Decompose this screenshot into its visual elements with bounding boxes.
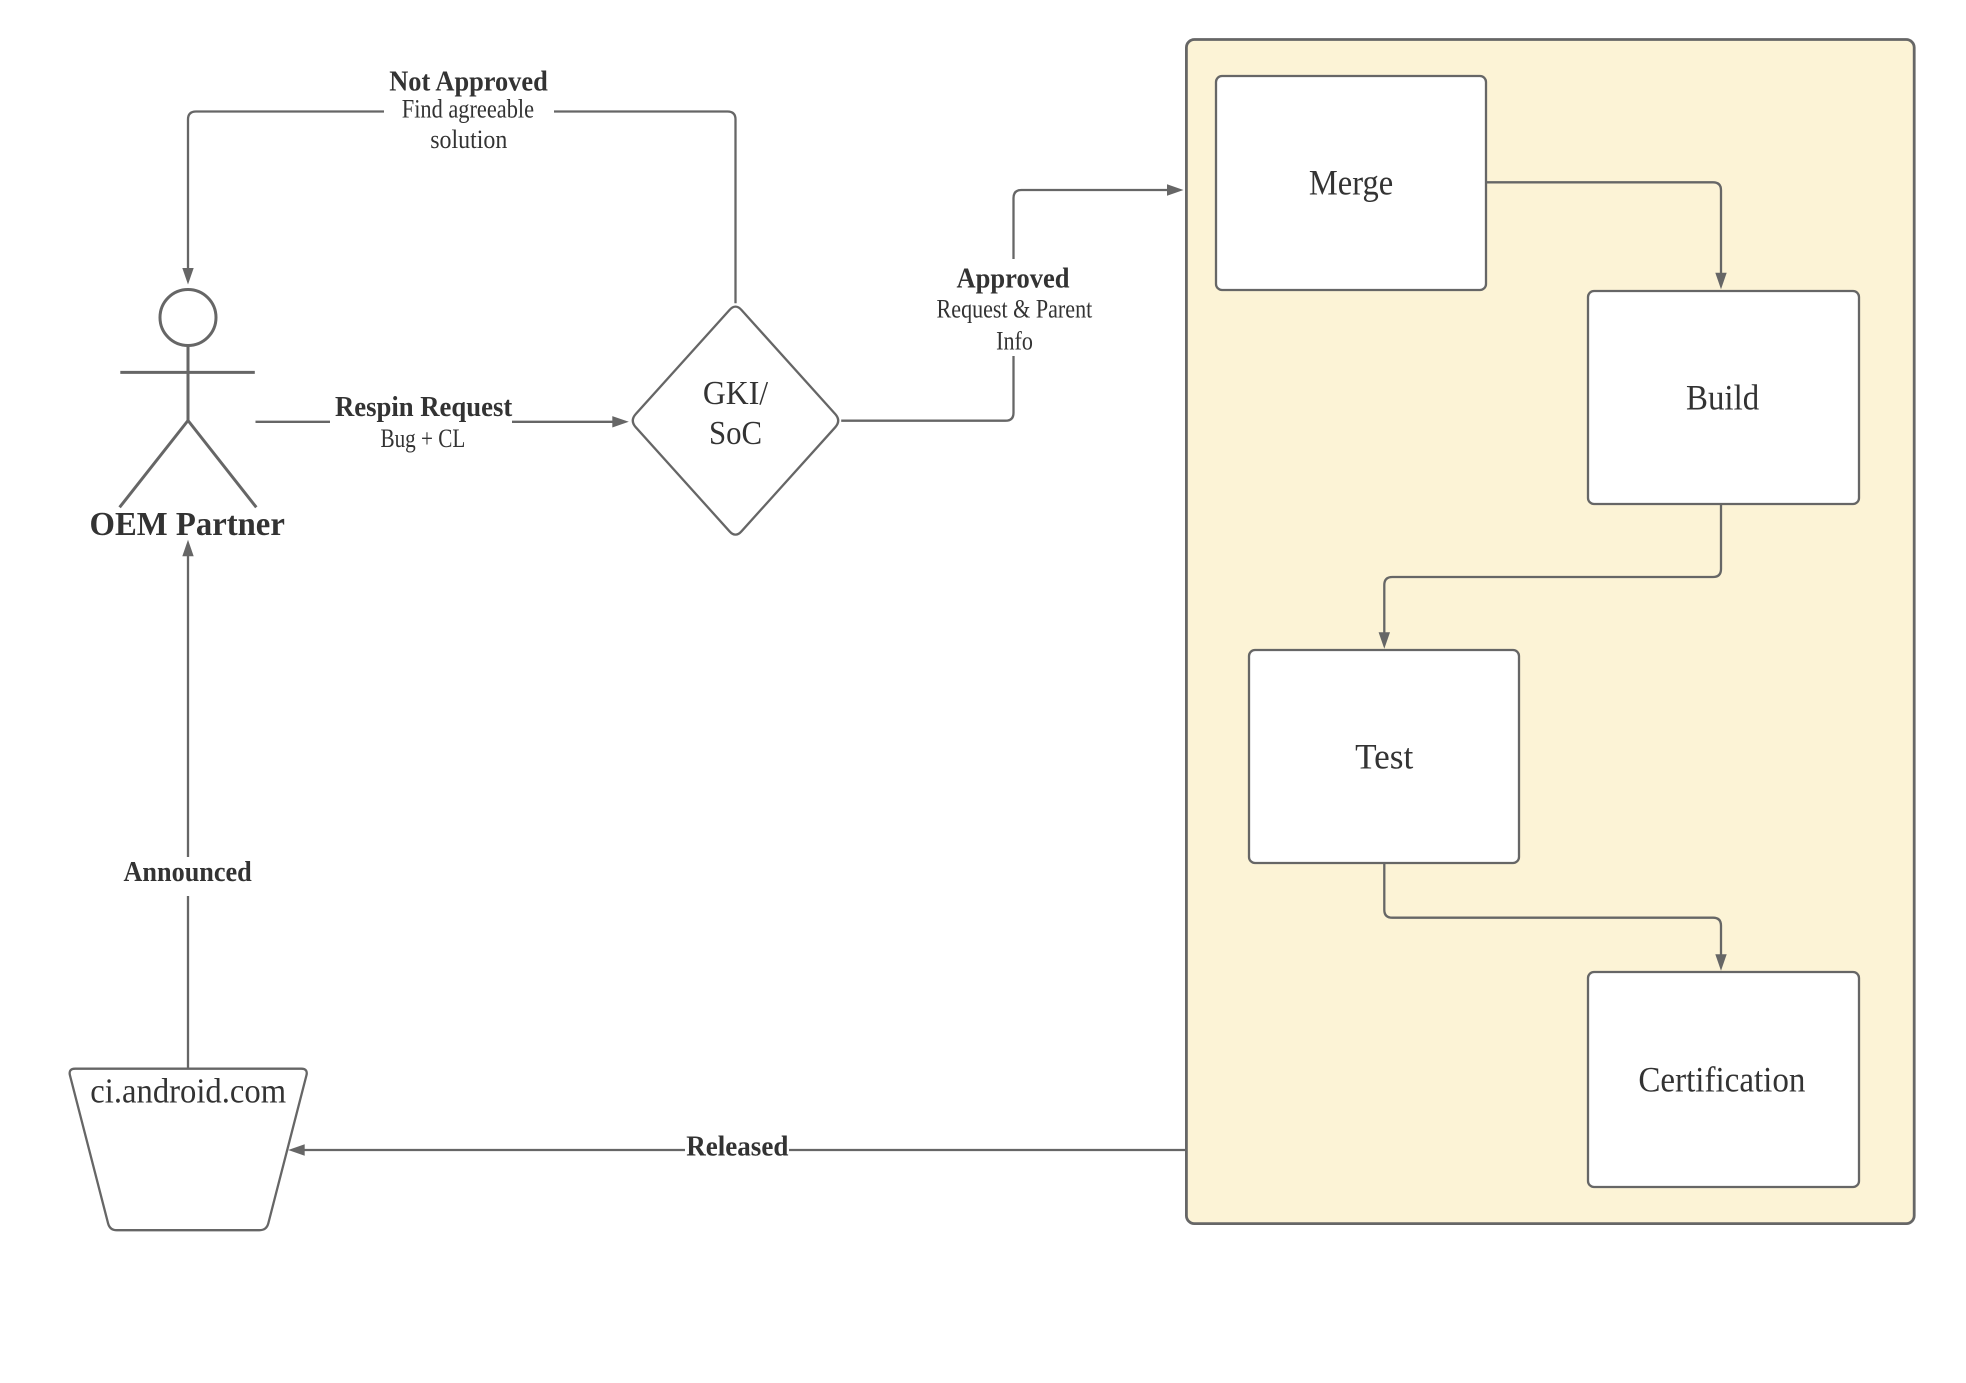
svg-text:Released: Released	[686, 1131, 788, 1163]
svg-text:OEM Partner: OEM Partner	[90, 506, 285, 543]
svg-text:Test: Test	[1355, 736, 1413, 776]
svg-text:SoC: SoC	[709, 415, 762, 452]
svg-text:Build: Build	[1686, 378, 1759, 418]
svg-text:GKI/: GKI/	[703, 375, 769, 412]
svg-text:Respin Request: Respin Request	[335, 391, 513, 423]
svg-text:Request & Parent: Request & Parent	[937, 295, 1093, 324]
svg-text:Certification: Certification	[1638, 1060, 1805, 1100]
svg-text:solution: solution	[430, 125, 507, 154]
svg-text:Merge: Merge	[1309, 163, 1393, 203]
svg-text:Info: Info	[996, 327, 1033, 356]
svg-text:Not Approved: Not Approved	[389, 66, 548, 98]
svg-text:Find agreeable: Find agreeable	[402, 95, 534, 124]
svg-text:Approved: Approved	[957, 263, 1070, 295]
svg-text:ci.android.com: ci.android.com	[90, 1072, 286, 1111]
svg-text:Announced: Announced	[124, 856, 252, 888]
svg-text:Bug + CL: Bug + CL	[380, 424, 465, 453]
